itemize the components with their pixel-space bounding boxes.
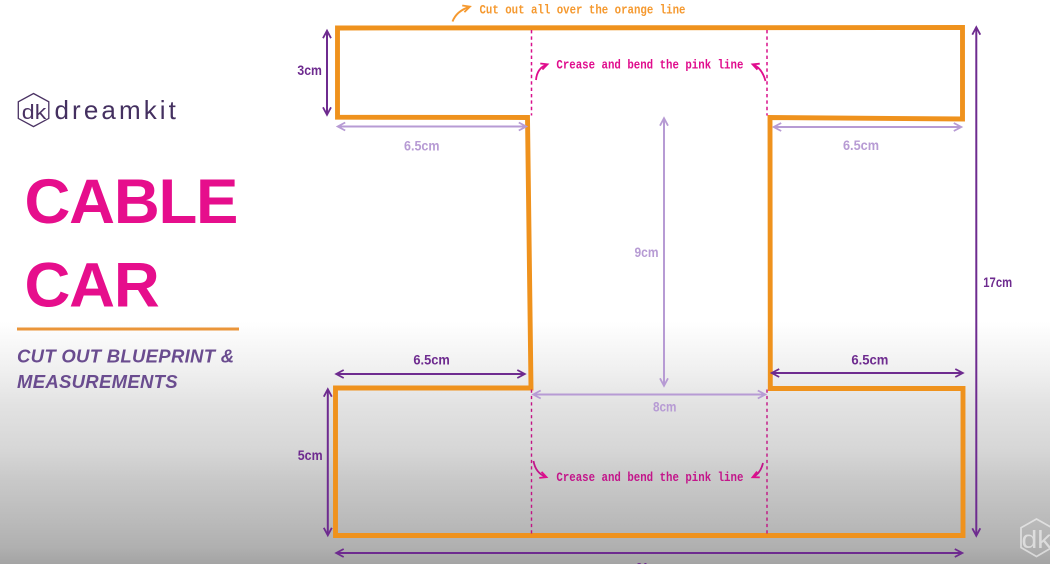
svg-text:Crease and bend the pink line: Crease and bend the pink line xyxy=(556,470,743,485)
svg-text:21cm: 21cm xyxy=(636,560,665,564)
svg-text:3cm: 3cm xyxy=(297,62,322,78)
svg-text:9cm: 9cm xyxy=(635,244,659,260)
svg-text:8cm: 8cm xyxy=(653,398,677,414)
svg-text:5cm: 5cm xyxy=(298,447,323,463)
svg-text:dk: dk xyxy=(1022,526,1050,554)
svg-text:6.5cm: 6.5cm xyxy=(404,137,440,153)
svg-text:Crease and bend the pink line: Crease and bend the pink line xyxy=(556,58,743,73)
svg-text:6.5cm: 6.5cm xyxy=(843,137,879,153)
svg-text:Cut out all over the orange li: Cut out all over the orange line xyxy=(480,2,686,17)
svg-text:6.5cm: 6.5cm xyxy=(851,352,888,368)
svg-text:6.5cm: 6.5cm xyxy=(413,351,449,367)
svg-text:17cm: 17cm xyxy=(983,274,1012,290)
